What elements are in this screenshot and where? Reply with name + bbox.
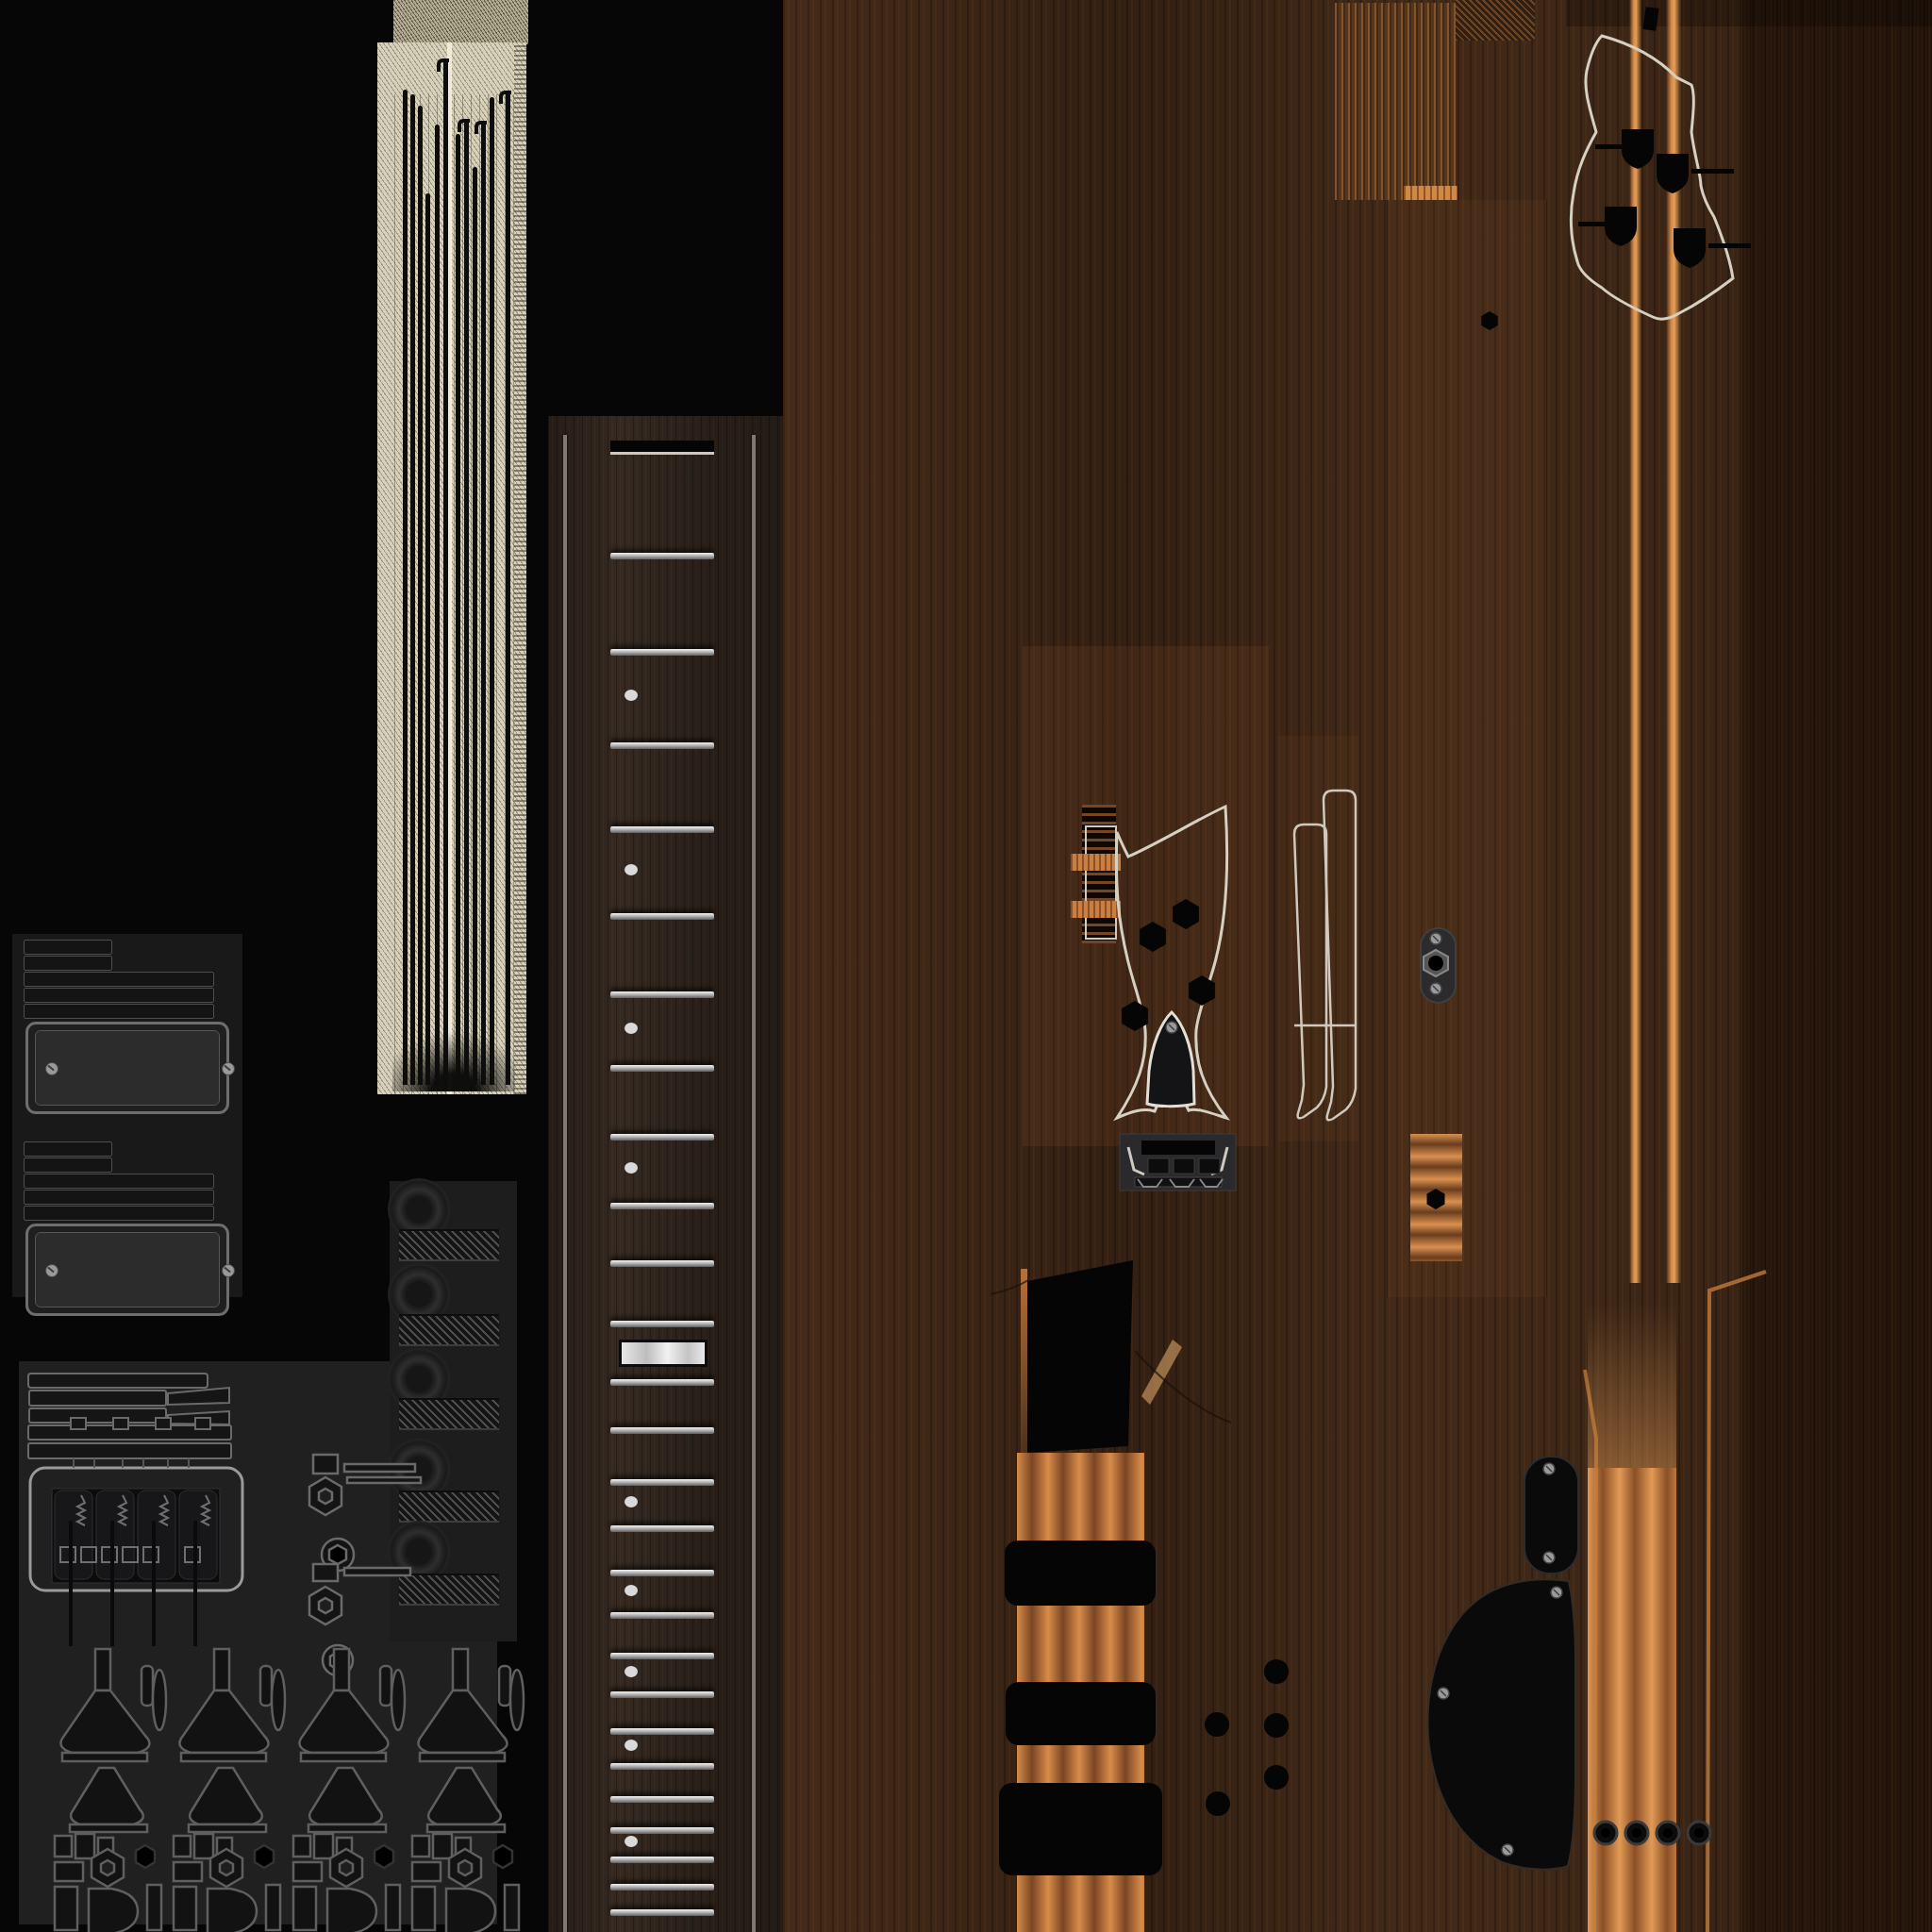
strings-sheet-top-hatch [393,0,528,44]
string-strand [425,193,430,1085]
neck-profile-panel [1278,736,1358,1141]
fret-wire [610,1857,714,1863]
headstock-front-panel [1023,646,1269,1146]
jack-plate-oval [1420,927,1457,1004]
body-wood-dark-column [1742,0,1932,1932]
neck-through-stripe-left [1629,0,1641,1283]
fret-wire [610,1884,714,1890]
pickup-side-bar [24,940,112,955]
neck-laminate-rect [1335,3,1457,200]
pickup-side-bar [24,1158,112,1173]
knob-knurl-band [399,1229,499,1261]
fret-dot-inlay [625,1836,638,1847]
string-ball-hook [475,121,487,134]
center-band-fade [1588,1302,1676,1472]
fret-wire [610,1570,714,1576]
orange-crossbar-2 [1071,901,1121,918]
fret-wire [610,1427,714,1434]
fret-wire [610,1479,714,1486]
fretboard-sheet [548,416,783,1932]
strings-edge-serration [514,42,526,1094]
nut-slot [610,441,714,455]
fret-wire [610,991,714,998]
pickup-side-bar [24,972,214,987]
fret-wire [610,649,714,656]
fret-dot-inlay [625,1740,638,1751]
fret-wire [610,826,714,833]
fret-wire [610,742,714,749]
strings-sheet [377,42,526,1094]
string-strand [403,90,408,1085]
fret-wire [610,1612,714,1619]
string-strand [435,125,440,1085]
fret-wire [610,913,714,920]
string-ball-hook [499,91,511,104]
fret-wire [610,1203,714,1209]
knob-knurl-band [399,1314,499,1346]
fret-dot-inlay [625,1496,638,1507]
pickup-cover [25,1224,229,1316]
string-strand [473,167,477,1085]
trussrod-channel-outline [1085,825,1117,940]
battery-cover-pill [1524,1456,1579,1574]
knob-knurl-band [399,1574,499,1606]
fret-dot-inlay [625,1023,638,1034]
body-front-zebra-strip [1017,1453,1144,1932]
string-strand [490,97,494,1085]
laminate-orange-band [1404,186,1457,200]
pickup-cover-face [35,1030,220,1106]
fret-wire [610,553,714,559]
pickup-side-bar [24,1190,214,1205]
fret-wire [610,1134,714,1141]
wood-top-shade-band [1566,0,1932,26]
pickup-texture-sheet [12,934,242,1297]
fret-wire [610,1827,714,1834]
neck-heel-zebra-panel [1410,1134,1462,1261]
fret-wire [610,1653,714,1659]
fret-dot-inlay [625,690,638,701]
string-strand [410,94,415,1085]
knob-texture-sheet [390,1181,517,1641]
pickup-screw [45,1264,58,1277]
neck-back-column [1387,200,1547,1297]
thin-orange-stripe [1021,1269,1027,1457]
fretboard-side-line-left [563,435,567,1932]
fret-dot-inlay [625,864,638,875]
string-ball-hook [437,58,449,72]
orange-crossbar-1 [1071,854,1121,871]
pickup-side-bar [24,1141,112,1157]
string-strand [506,91,510,1085]
string-strand [443,58,448,1085]
texture-atlas-canvas [0,0,1932,1932]
fret-wire [610,1379,714,1386]
fret-dot-inlay [625,1162,638,1174]
pickup-side-bar [24,1206,214,1221]
neck-through-stripe-right [1666,0,1681,1283]
string-ball-hook [458,119,470,132]
body-back-center-band [1588,1468,1676,1932]
pickup-screw [45,1062,58,1075]
pickup-screw [222,1264,235,1277]
knob-knurl-band [399,1398,499,1430]
pickup-screw [222,1062,235,1075]
string-strand [418,106,423,1085]
string-strand [464,119,469,1085]
fret-wire [610,1065,714,1072]
fret-wire [610,1728,714,1735]
pickup-cover [25,1022,229,1114]
pickup-side-bar [24,988,214,1003]
pickup-side-bar [24,1174,214,1189]
string-strand [481,121,486,1085]
twelfth-fret-rect-inlay [619,1340,708,1367]
fret-wire [610,1525,714,1532]
pickup-side-bar [24,1004,214,1019]
pickup-cover-face [35,1232,220,1307]
diagonal-grain-patch [1456,0,1535,41]
fret-dot-inlay [625,1666,638,1677]
fret-wire [610,1321,714,1327]
fret-dot-inlay [625,1585,638,1596]
fret-wire [610,1260,714,1267]
string-strand [456,134,460,1085]
fret-wire [610,1796,714,1803]
fret-wire [610,1763,714,1770]
fret-wire [610,1691,714,1698]
knob-knurl-band [399,1491,499,1523]
fretboard-side-line-right [752,435,756,1932]
fret-wire [610,1909,714,1916]
pickup-side-bar [24,956,112,971]
